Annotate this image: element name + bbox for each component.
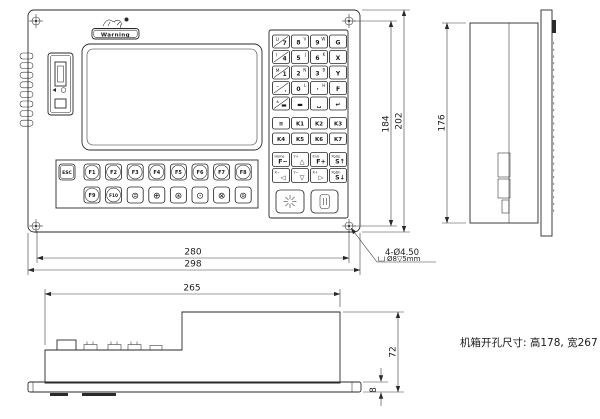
numpad-key-8: 8V: [292, 35, 309, 48]
start-button: [276, 190, 304, 213]
k-key-K4: K4: [273, 133, 290, 145]
bottom-plate-detail-1: [50, 393, 68, 396]
key-label: Y−: [294, 171, 299, 175]
key-label: 3: [315, 71, 319, 78]
arrow-key-Y−: Y−▽: [292, 169, 309, 183]
dim-176: 176: [438, 114, 448, 131]
brand-logo: Warning: [92, 18, 139, 40]
side-connector-1: [498, 153, 510, 177]
key-esc: ESC: [59, 164, 75, 180]
logo-dot: [125, 18, 129, 22]
key-label: F10: [109, 193, 118, 199]
key-label: X−: [275, 171, 280, 175]
key-label: ▽: [300, 174, 305, 181]
key-f3: F3: [127, 164, 143, 180]
mounting-hole: [342, 14, 356, 28]
key-label: S↓: [335, 174, 345, 181]
key-label: V: [304, 37, 307, 42]
side-view: [470, 10, 556, 236]
key-label: 5: [296, 55, 300, 62]
generated-details: ESCF1F2F3F4F5F6F7F8F9F10⊜⊕⊛⊙⊗⊚U78V9WGI45…: [20, 14, 356, 233]
numpad-key-▬: ▬: [292, 97, 309, 110]
numpad-key-.: −.: [273, 82, 290, 95]
numpad-key-3: 3B: [311, 66, 328, 79]
k-key-K2: K2: [311, 118, 328, 130]
key-label: K3: [334, 122, 342, 128]
key-f10: F10: [106, 187, 122, 203]
key-label: −: [276, 84, 280, 89]
usb-arrow-icon: [53, 88, 57, 92]
key-label: ▬: [297, 102, 303, 109]
bottom-connector-large: [57, 340, 76, 350]
key-label: ▬: [281, 103, 286, 109]
numpad-key-G: G: [330, 35, 347, 48]
key-f6: F6: [192, 164, 208, 180]
key-label: F−: [278, 158, 288, 165]
k-key-K7: K7: [330, 133, 347, 145]
numpad-key-7: U7: [273, 35, 290, 48]
key-label: 7: [283, 41, 287, 47]
vent-slot: [20, 91, 33, 97]
key-label: ⊚: [239, 191, 247, 201]
arrow-key-X−: X−◁: [273, 169, 290, 183]
annotations: 4-Ø4.50 Ø8▽5mm 机箱开孔尺寸: 高178, 宽267: [351, 228, 598, 349]
key-label: F8: [240, 170, 247, 176]
side-connector-3: [502, 200, 509, 213]
bottom-body: [45, 312, 340, 383]
k-key-≡: ≡: [273, 118, 290, 130]
function-icon-key-2: ⊕: [149, 187, 165, 203]
key-label: H: [322, 83, 325, 88]
key-label: F5: [175, 170, 182, 176]
drawing-canvas: Warning: [0, 0, 600, 419]
key-label: K4: [277, 137, 285, 143]
dim-184: 184: [382, 115, 392, 132]
arrow-key-Y+: Y+△: [292, 153, 309, 167]
side-top-connector: [552, 20, 556, 33]
dim-8: 8: [369, 387, 379, 393]
numpad-key-X: X: [330, 51, 347, 64]
bottom-view: [28, 312, 361, 396]
key-label: .: [284, 88, 286, 94]
numpad-key-F: F: [330, 82, 347, 95]
mounting-hole: [29, 14, 43, 28]
numpad-key-▬: ±▬: [273, 97, 290, 110]
key-label: ≡: [279, 122, 284, 128]
usb-lower-slot: [55, 99, 66, 108]
arrow-key-X+: X+▷: [311, 169, 328, 183]
dim-280: 280: [184, 248, 201, 258]
screen-bezel: [82, 44, 262, 150]
key-label: △: [300, 158, 305, 165]
key-label: B: [323, 68, 326, 73]
numpad-key-9: 9W: [311, 35, 328, 48]
bottom-front-plate: [28, 382, 361, 392]
dim-298: 298: [184, 260, 201, 270]
usb-port-block: [48, 53, 73, 115]
mounting-hole: [342, 219, 356, 233]
key-label: K7: [334, 137, 342, 143]
key-label: ⊗: [218, 191, 226, 201]
key-label: ␣: [317, 102, 321, 109]
arrow-key-PgDn: PgDnS↓: [330, 169, 347, 183]
key-label: 4: [283, 57, 287, 63]
vent-slot: [20, 120, 33, 126]
key-label: F+: [316, 158, 326, 165]
side-body: [470, 23, 538, 223]
key-label: 9: [315, 40, 319, 47]
key-label: ·: [316, 86, 318, 93]
stop-button: [311, 190, 338, 213]
key-label: ▷: [319, 174, 324, 181]
key-label: F1: [89, 170, 96, 176]
usb-panel-inner: [51, 56, 71, 113]
function-icon-key-4: ⊙: [192, 187, 208, 203]
arrow-key-PgUp: PgUpS↑: [330, 153, 347, 167]
k-key-K3: K3: [330, 118, 347, 130]
screen-glass: [87, 49, 257, 145]
dim-202: 202: [395, 112, 405, 129]
cutout-note: 机箱开孔尺寸: 高178, 宽267: [460, 336, 598, 349]
key-label: F3: [132, 170, 139, 176]
numpad-key-·: ·H: [311, 82, 328, 95]
key-f7: F7: [214, 164, 230, 180]
vent-slot: [20, 82, 33, 88]
key-label: K: [323, 52, 326, 57]
key-label: 6: [315, 55, 319, 62]
bottom-plate-detail-2: [82, 393, 116, 396]
key-label: ↵: [335, 102, 340, 109]
key-label: F6: [197, 170, 204, 176]
numpad-key-5: 5J: [292, 51, 309, 64]
key-label: K5: [296, 137, 304, 143]
key-f2: F2: [106, 164, 122, 180]
key-label: Y: [335, 71, 341, 78]
key-label: ±: [276, 99, 280, 105]
key-label: W: [321, 37, 325, 42]
numpad-key-␣: ␣: [311, 97, 328, 110]
dim-265: 265: [183, 284, 200, 294]
numpad-key-6: 6K: [311, 51, 328, 64]
function-icon-key-6: ⊚: [235, 187, 251, 203]
function-icon-key-5: ⊗: [214, 187, 230, 203]
numpad-key-Y: Y: [330, 66, 347, 79]
key-label: X: [336, 55, 341, 62]
key-label: I: [276, 52, 277, 58]
key-label: J: [304, 52, 306, 57]
numpad-key-4: I4: [273, 51, 290, 64]
key-label: M: [276, 68, 280, 74]
vent-slot: [20, 72, 33, 78]
key-label: X+: [313, 171, 318, 175]
key-label: G: [336, 40, 341, 47]
key-f4: F4: [149, 164, 165, 180]
logo-mark: [103, 20, 122, 28]
vent-slot: [20, 53, 33, 59]
k-key-K5: K5: [292, 133, 309, 145]
numpad-key-2: 2N: [292, 66, 309, 79]
side-connector-2: [498, 179, 510, 198]
key-label: F7: [218, 170, 225, 176]
function-icon-key-1: ⊜: [127, 187, 143, 203]
usb-socket-inner: [58, 66, 64, 82]
key-f1: F1: [84, 164, 100, 180]
key-label: 1: [283, 72, 287, 78]
key-f5: F5: [170, 164, 186, 180]
key-label: ⊕: [153, 191, 161, 201]
vent-slot: [20, 111, 33, 117]
k-key-K6: K6: [311, 133, 328, 145]
key-label: U: [276, 37, 279, 43]
key-label: Y+: [294, 155, 299, 159]
key-label: ESC: [62, 170, 72, 176]
key-f9: F9: [84, 187, 100, 203]
usb-socket: [55, 62, 66, 86]
key-label: ⊜: [131, 191, 139, 201]
logo-text: Warning: [101, 32, 130, 38]
key-label: ◁: [281, 174, 286, 181]
key-label: N: [303, 68, 306, 73]
key-label: 8: [296, 40, 300, 47]
engineering-drawing: Warning: [0, 0, 600, 419]
function-icon-key-3: ⊛: [170, 187, 186, 203]
key-label: S↑: [335, 158, 345, 165]
dim-72: 72: [389, 346, 399, 357]
k-key-K1: K1: [292, 118, 309, 130]
key-label: ⊛: [175, 191, 183, 201]
key-label: F2: [110, 170, 117, 176]
key-label: ⊙: [196, 191, 204, 201]
key-label: K6: [315, 137, 323, 143]
vent-slot: [20, 63, 33, 69]
usb-indicator: [61, 88, 66, 93]
key-label: F9: [89, 193, 96, 199]
key-label: F4: [153, 170, 160, 176]
vent-slot: [20, 101, 33, 107]
bottom-connector-group: [84, 342, 162, 351]
arrow-key-Home: HomeF−: [273, 153, 290, 167]
lcd-screen: [82, 44, 262, 150]
side-front-bezel: [541, 10, 552, 236]
key-f8: F8: [235, 164, 251, 180]
key-label: K2: [315, 122, 323, 128]
key-label: 0: [296, 86, 300, 93]
numpad-key-↵: ↵: [330, 97, 347, 110]
key-label: K1: [296, 122, 304, 128]
arrow-key-End: EndF+: [311, 153, 328, 167]
key-label: F: [336, 86, 340, 93]
counterbore-icon: [379, 257, 385, 262]
hole-note-line2: Ø8▽5mm: [387, 255, 421, 263]
numpad-key-0: 0L: [292, 82, 309, 95]
numpad-key-1: M1: [273, 66, 290, 79]
key-label: 2: [296, 71, 300, 78]
